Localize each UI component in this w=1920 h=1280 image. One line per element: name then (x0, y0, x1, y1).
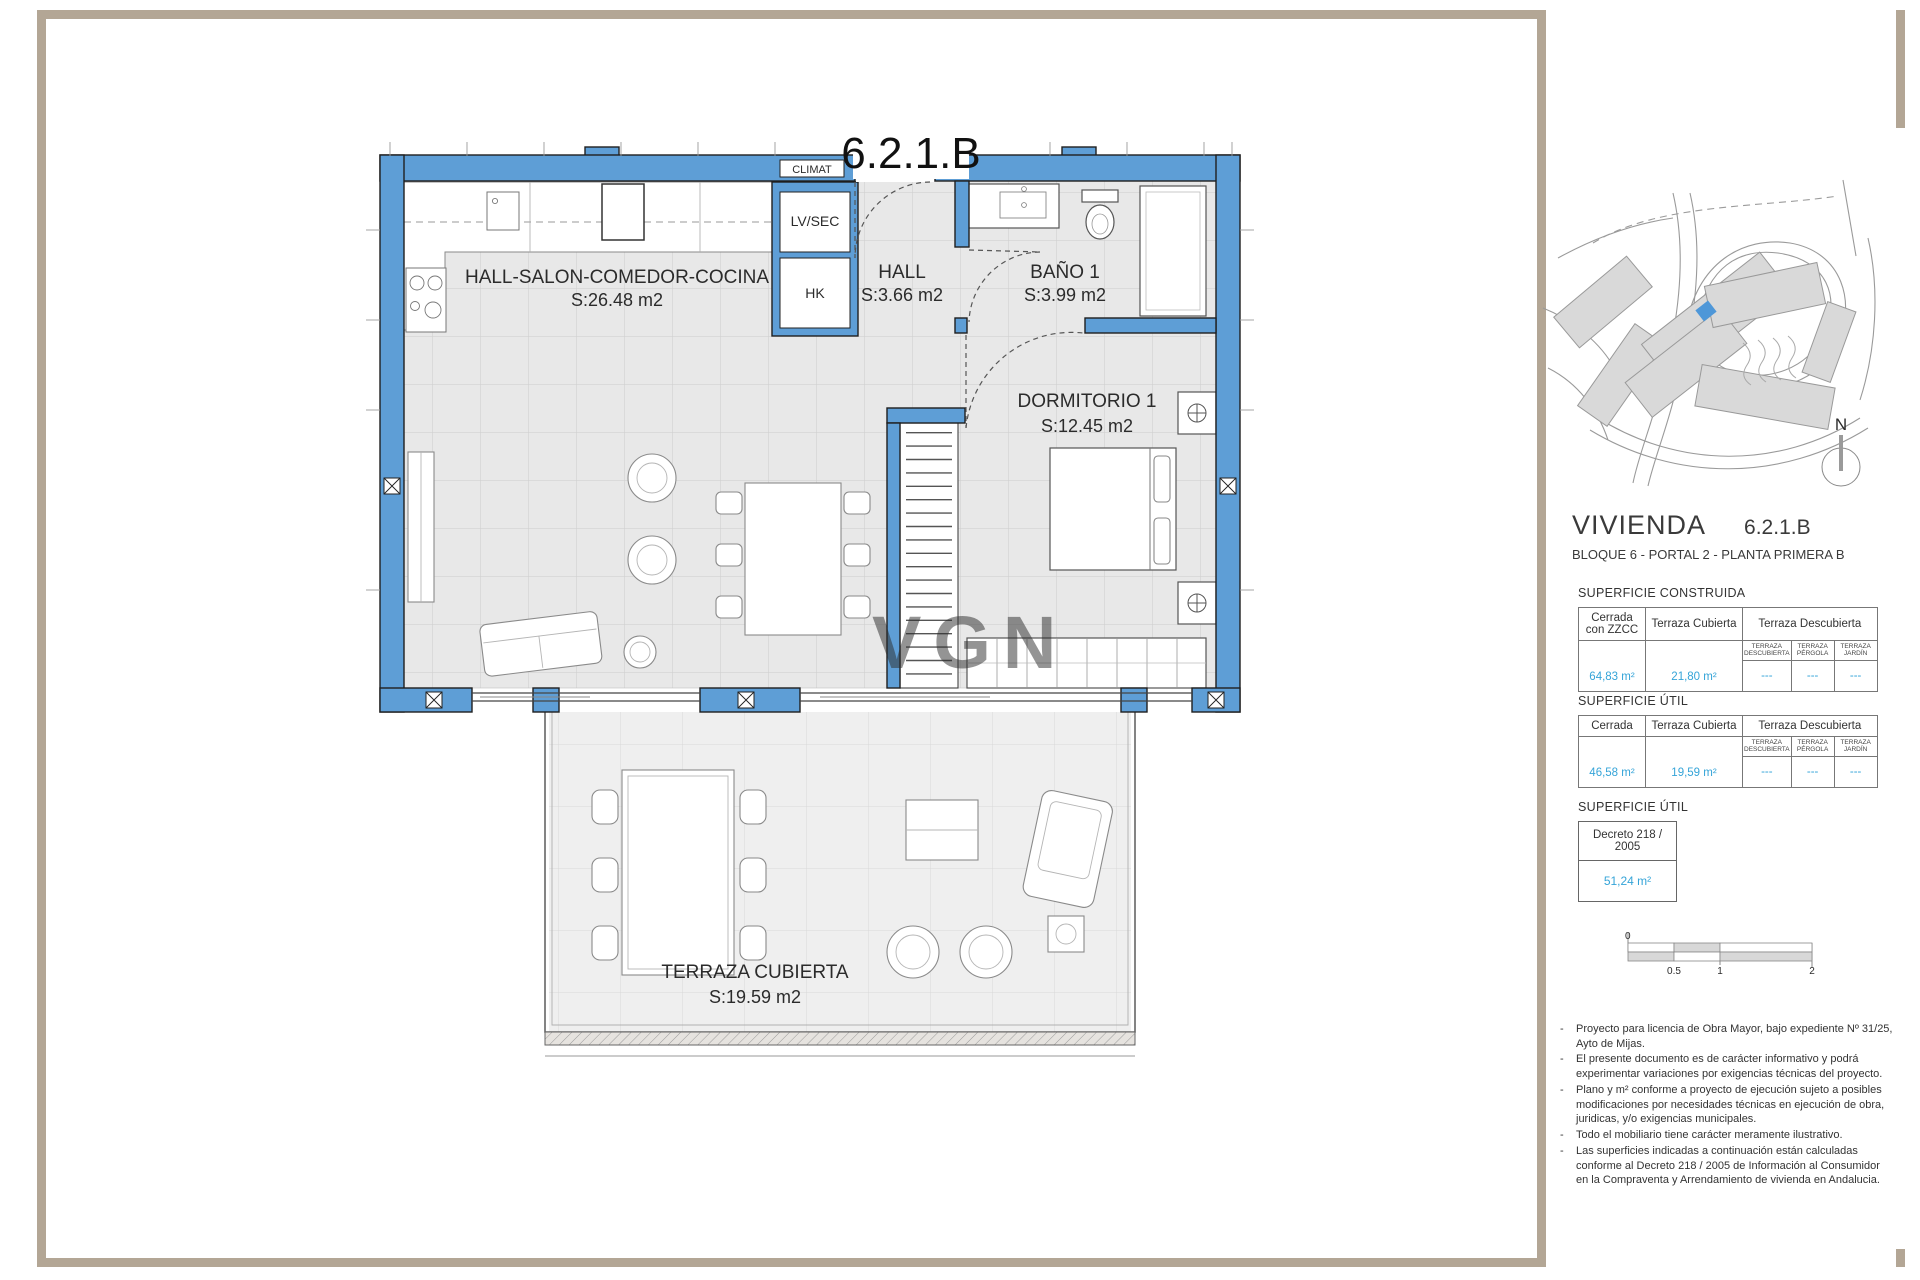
value-cell: 46,58 m² (1579, 737, 1646, 788)
note-text: El presente documento es de carácter inf… (1576, 1052, 1895, 1081)
col-header: Terraza Cubierta (1646, 608, 1743, 641)
notes-list: - Proyecto para licencia de Obra Mayor, … (1560, 1022, 1895, 1189)
sliding-glass-doors (472, 693, 1192, 701)
note-bullet: - (1560, 1022, 1576, 1051)
scale-label: 2 (1809, 966, 1815, 975)
kitchen-appliance (487, 192, 519, 230)
note-item: - Plano y m² conforme a proyecto de ejec… (1560, 1083, 1895, 1127)
note-item: - Proyecto para licencia de Obra Mayor, … (1560, 1022, 1895, 1051)
col-header: Cerrada con ZZCC (1579, 608, 1646, 641)
superficie-util-section: SUPERFICIE ÚTIL Cerrada Terraza Cubierta… (1578, 694, 1878, 788)
col-header: Terraza Descubierta (1743, 608, 1878, 641)
decreto-box: Decreto 218 / 2005 51,24 m² (1578, 821, 1677, 902)
superficie-construida-table: Cerrada con ZZCC Terraza Cubierta Terraz… (1578, 607, 1878, 692)
note-text: Proyecto para licencia de Obra Mayor, ba… (1576, 1022, 1895, 1051)
vivienda-subtitle: BLOQUE 6 - PORTAL 2 - PLANTA PRIMERA B (1572, 547, 1845, 562)
tv-sideboard (408, 452, 434, 602)
value-cell: --- (1743, 660, 1792, 691)
subcol-header: TERRAZA JARDÍN (1834, 641, 1877, 661)
note-bullet: - (1560, 1052, 1576, 1081)
note-text: Plano y m² conforme a proyecto de ejecuc… (1576, 1083, 1895, 1127)
watermark: VGN (872, 601, 1068, 684)
dining-table (716, 483, 870, 635)
value-cell: 64,83 m² (1579, 641, 1646, 692)
value-cell: 21,80 m² (1646, 641, 1743, 692)
armchair (628, 454, 676, 502)
svg-text:TERRAZA CUBIERTA: TERRAZA CUBIERTA (661, 962, 849, 983)
svg-text:DORMITORIO 1: DORMITORIO 1 (1018, 391, 1157, 412)
subcol-header: TERRAZA PÉRGOLA (1791, 737, 1834, 757)
svg-text:S:3.66 m2: S:3.66 m2 (861, 285, 943, 305)
note-bullet: - (1560, 1083, 1576, 1127)
armchair (628, 536, 676, 584)
lvsec-label: LV/SEC (791, 213, 840, 229)
note-item: - Todo el mobiliario tiene carácter mera… (1560, 1128, 1895, 1143)
vivienda-header: VIVIENDA6.2.1.B BLOQUE 6 - PORTAL 2 - PL… (1572, 510, 1845, 562)
svg-text:HALL-SALON-COMEDOR-COCINA: HALL-SALON-COMEDOR-COCINA (465, 267, 769, 288)
decreto-value: 51,24 m² (1579, 861, 1676, 901)
svg-text:S:26.48 m2: S:26.48 m2 (571, 290, 663, 310)
vivienda-unit: 6.2.1.B (1744, 516, 1811, 539)
bed (1050, 448, 1176, 570)
svg-text:HALL: HALL (878, 262, 926, 283)
terrace-side-table (906, 800, 978, 860)
scale-label: 0 (1625, 931, 1631, 942)
superficie-util-title: SUPERFICIE ÚTIL (1578, 694, 1878, 708)
svg-text:BAÑO 1: BAÑO 1 (1030, 261, 1100, 283)
col-header: Cerrada (1579, 716, 1646, 737)
decreto-label: Decreto 218 / 2005 (1579, 822, 1676, 861)
note-bullet: - (1560, 1144, 1576, 1188)
terrace-dining-table (592, 770, 766, 975)
cooktop (406, 268, 446, 332)
scale-label: 1 (1717, 966, 1723, 975)
vivienda-label: VIVIENDA (1572, 510, 1706, 540)
superficie-construida-title: SUPERFICIE CONSTRUIDA (1578, 586, 1878, 600)
superficie-construida-section: SUPERFICIE CONSTRUIDA Cerrada con ZZCC T… (1578, 586, 1878, 692)
superficie-util-table: Cerrada Terraza Cubierta Terraza Descubi… (1578, 715, 1878, 788)
scale-label: 0.5 (1667, 966, 1681, 975)
hk-label: HK (805, 285, 825, 301)
coffee-table (624, 636, 656, 668)
note-item: - Las superficies indicadas a continuaci… (1560, 1144, 1895, 1188)
subcol-header: TERRAZA DESCUBIERTA (1743, 641, 1792, 661)
note-text: Todo el mobiliario tiene carácter merame… (1576, 1128, 1843, 1143)
col-header: Terraza Descubierta (1743, 716, 1878, 737)
svg-text:S:12.45 m2: S:12.45 m2 (1041, 416, 1133, 436)
site-map: N (1538, 168, 1890, 503)
wall-light-symbol (1178, 392, 1216, 434)
terrace-small-table (1048, 916, 1084, 952)
terrace-round-chair (887, 926, 939, 978)
note-item: - El presente documento es de carácter i… (1560, 1052, 1895, 1081)
note-text: Las superficies indicadas a continuación… (1576, 1144, 1895, 1188)
superficie-util-decreto-title: SUPERFICIE ÚTIL (1578, 800, 1688, 814)
bath-sink (967, 184, 1059, 228)
subcol-header: TERRAZA JARDÍN (1834, 737, 1877, 757)
oven-column (602, 184, 644, 240)
wall-light-symbol (1178, 582, 1216, 624)
subcol-header: TERRAZA DESCUBIERTA (1743, 737, 1792, 757)
svg-text:S:3.99 m2: S:3.99 m2 (1024, 285, 1106, 305)
plan-title: 6.2.1.B (841, 129, 980, 178)
climat-label: CLIMAT (780, 160, 844, 177)
shower (1140, 186, 1206, 316)
value-cell: 19,59 m² (1646, 737, 1743, 788)
superficie-util-decreto-section: SUPERFICIE ÚTIL Decreto 218 / 2005 51,24… (1578, 800, 1688, 902)
svg-text:S:19.59 m2: S:19.59 m2 (709, 987, 801, 1007)
value-cell: --- (1791, 660, 1834, 691)
subcol-header: TERRAZA PÉRGOLA (1791, 641, 1834, 661)
svg-text:CLIMAT: CLIMAT (792, 164, 832, 176)
note-bullet: - (1560, 1128, 1576, 1143)
terrace-round-chair (960, 926, 1012, 978)
value-cell: --- (1743, 756, 1792, 787)
col-header: Terraza Cubierta (1646, 716, 1743, 737)
value-cell: --- (1834, 660, 1877, 691)
value-cell: --- (1791, 756, 1834, 787)
north-label: N (1835, 415, 1847, 434)
value-cell: --- (1834, 756, 1877, 787)
scale-bar: 0 0.5 1 2 (1618, 925, 1828, 975)
